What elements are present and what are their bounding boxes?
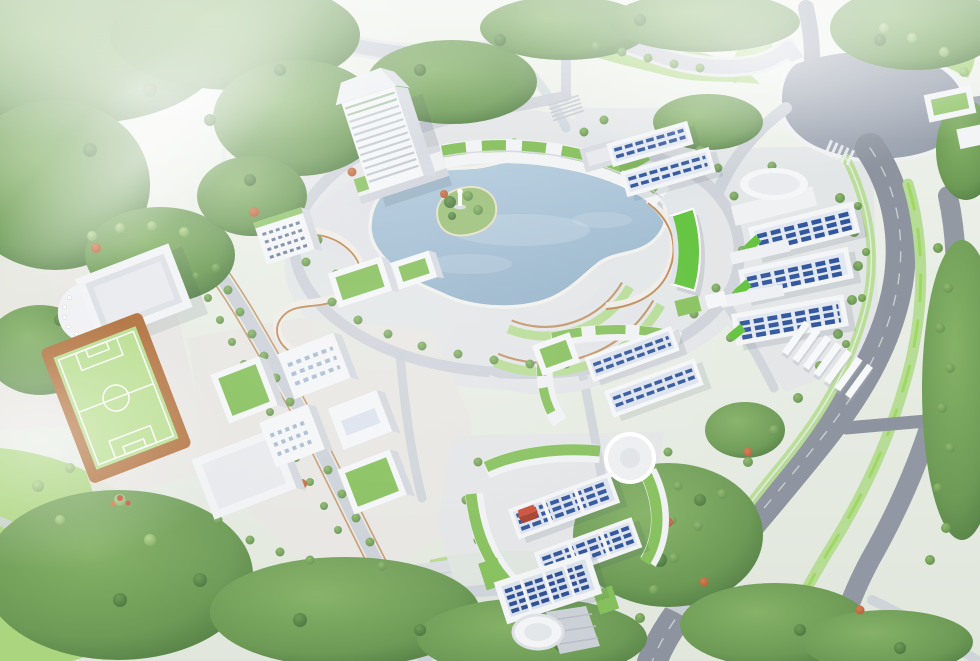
round-pond-center [524,623,552,641]
top-haze [0,0,980,140]
campus-aerial-rendering [0,0,980,661]
rendering-canvas [0,0,980,661]
